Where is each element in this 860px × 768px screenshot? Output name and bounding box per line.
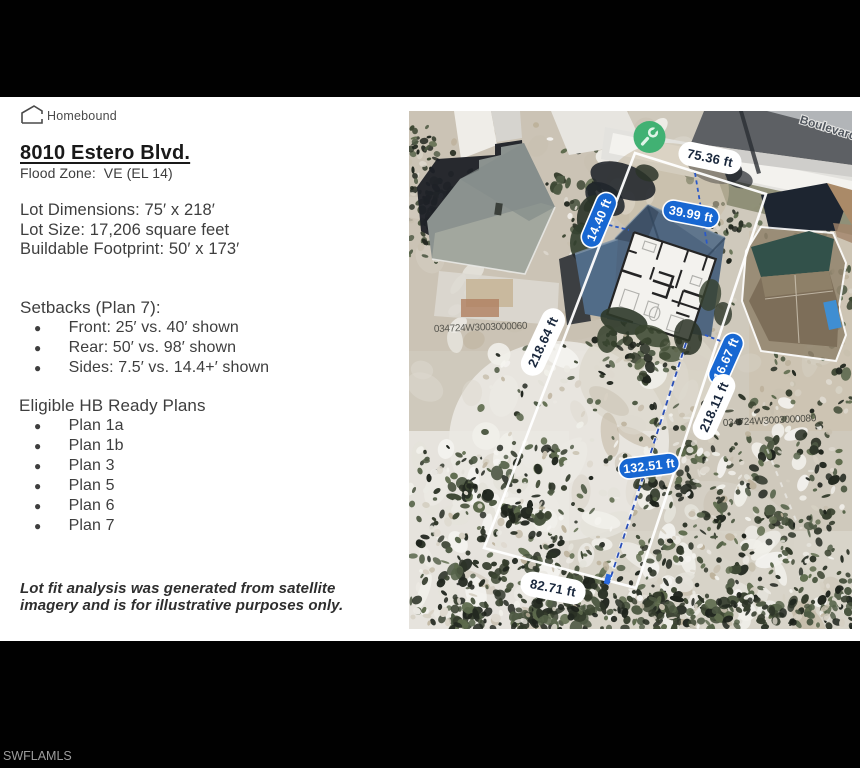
svg-text:Homebound: Homebound — [47, 109, 117, 123]
